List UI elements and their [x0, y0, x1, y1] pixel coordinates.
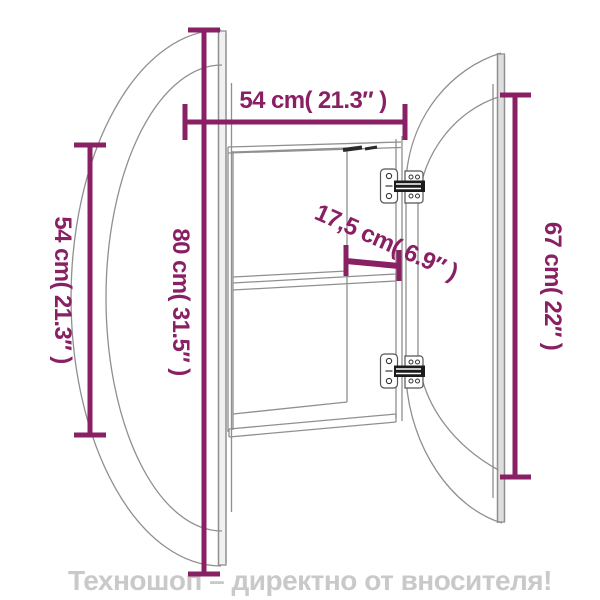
dim-label-height-right: 67 cm( 22″ ) [538, 222, 566, 350]
top-interior-shading [343, 147, 377, 150]
dim-label-height-left: 54 cm( 21.3″ ) [48, 216, 76, 363]
hinge-top [381, 169, 426, 203]
dim-height-left [74, 145, 106, 435]
dim-label-width-top: 54 cm( 21.3″ ) [239, 87, 386, 115]
product-dimension-diagram: Техношоп – директно от вносителя! [0, 0, 600, 600]
right-door-inner-arc [418, 97, 499, 470]
left-door-outer-arc [71, 30, 221, 566]
right-round-door [406, 53, 505, 523]
cabinet-box [228, 136, 402, 437]
left-round-door [71, 30, 231, 566]
dim-label-height-door: 80 cm( 31.5″ ) [166, 228, 194, 375]
hinge-bottom [381, 354, 426, 388]
middle-shelf [233, 271, 396, 290]
right-door-outer-arc [406, 53, 502, 523]
bottom-panel [229, 402, 396, 437]
